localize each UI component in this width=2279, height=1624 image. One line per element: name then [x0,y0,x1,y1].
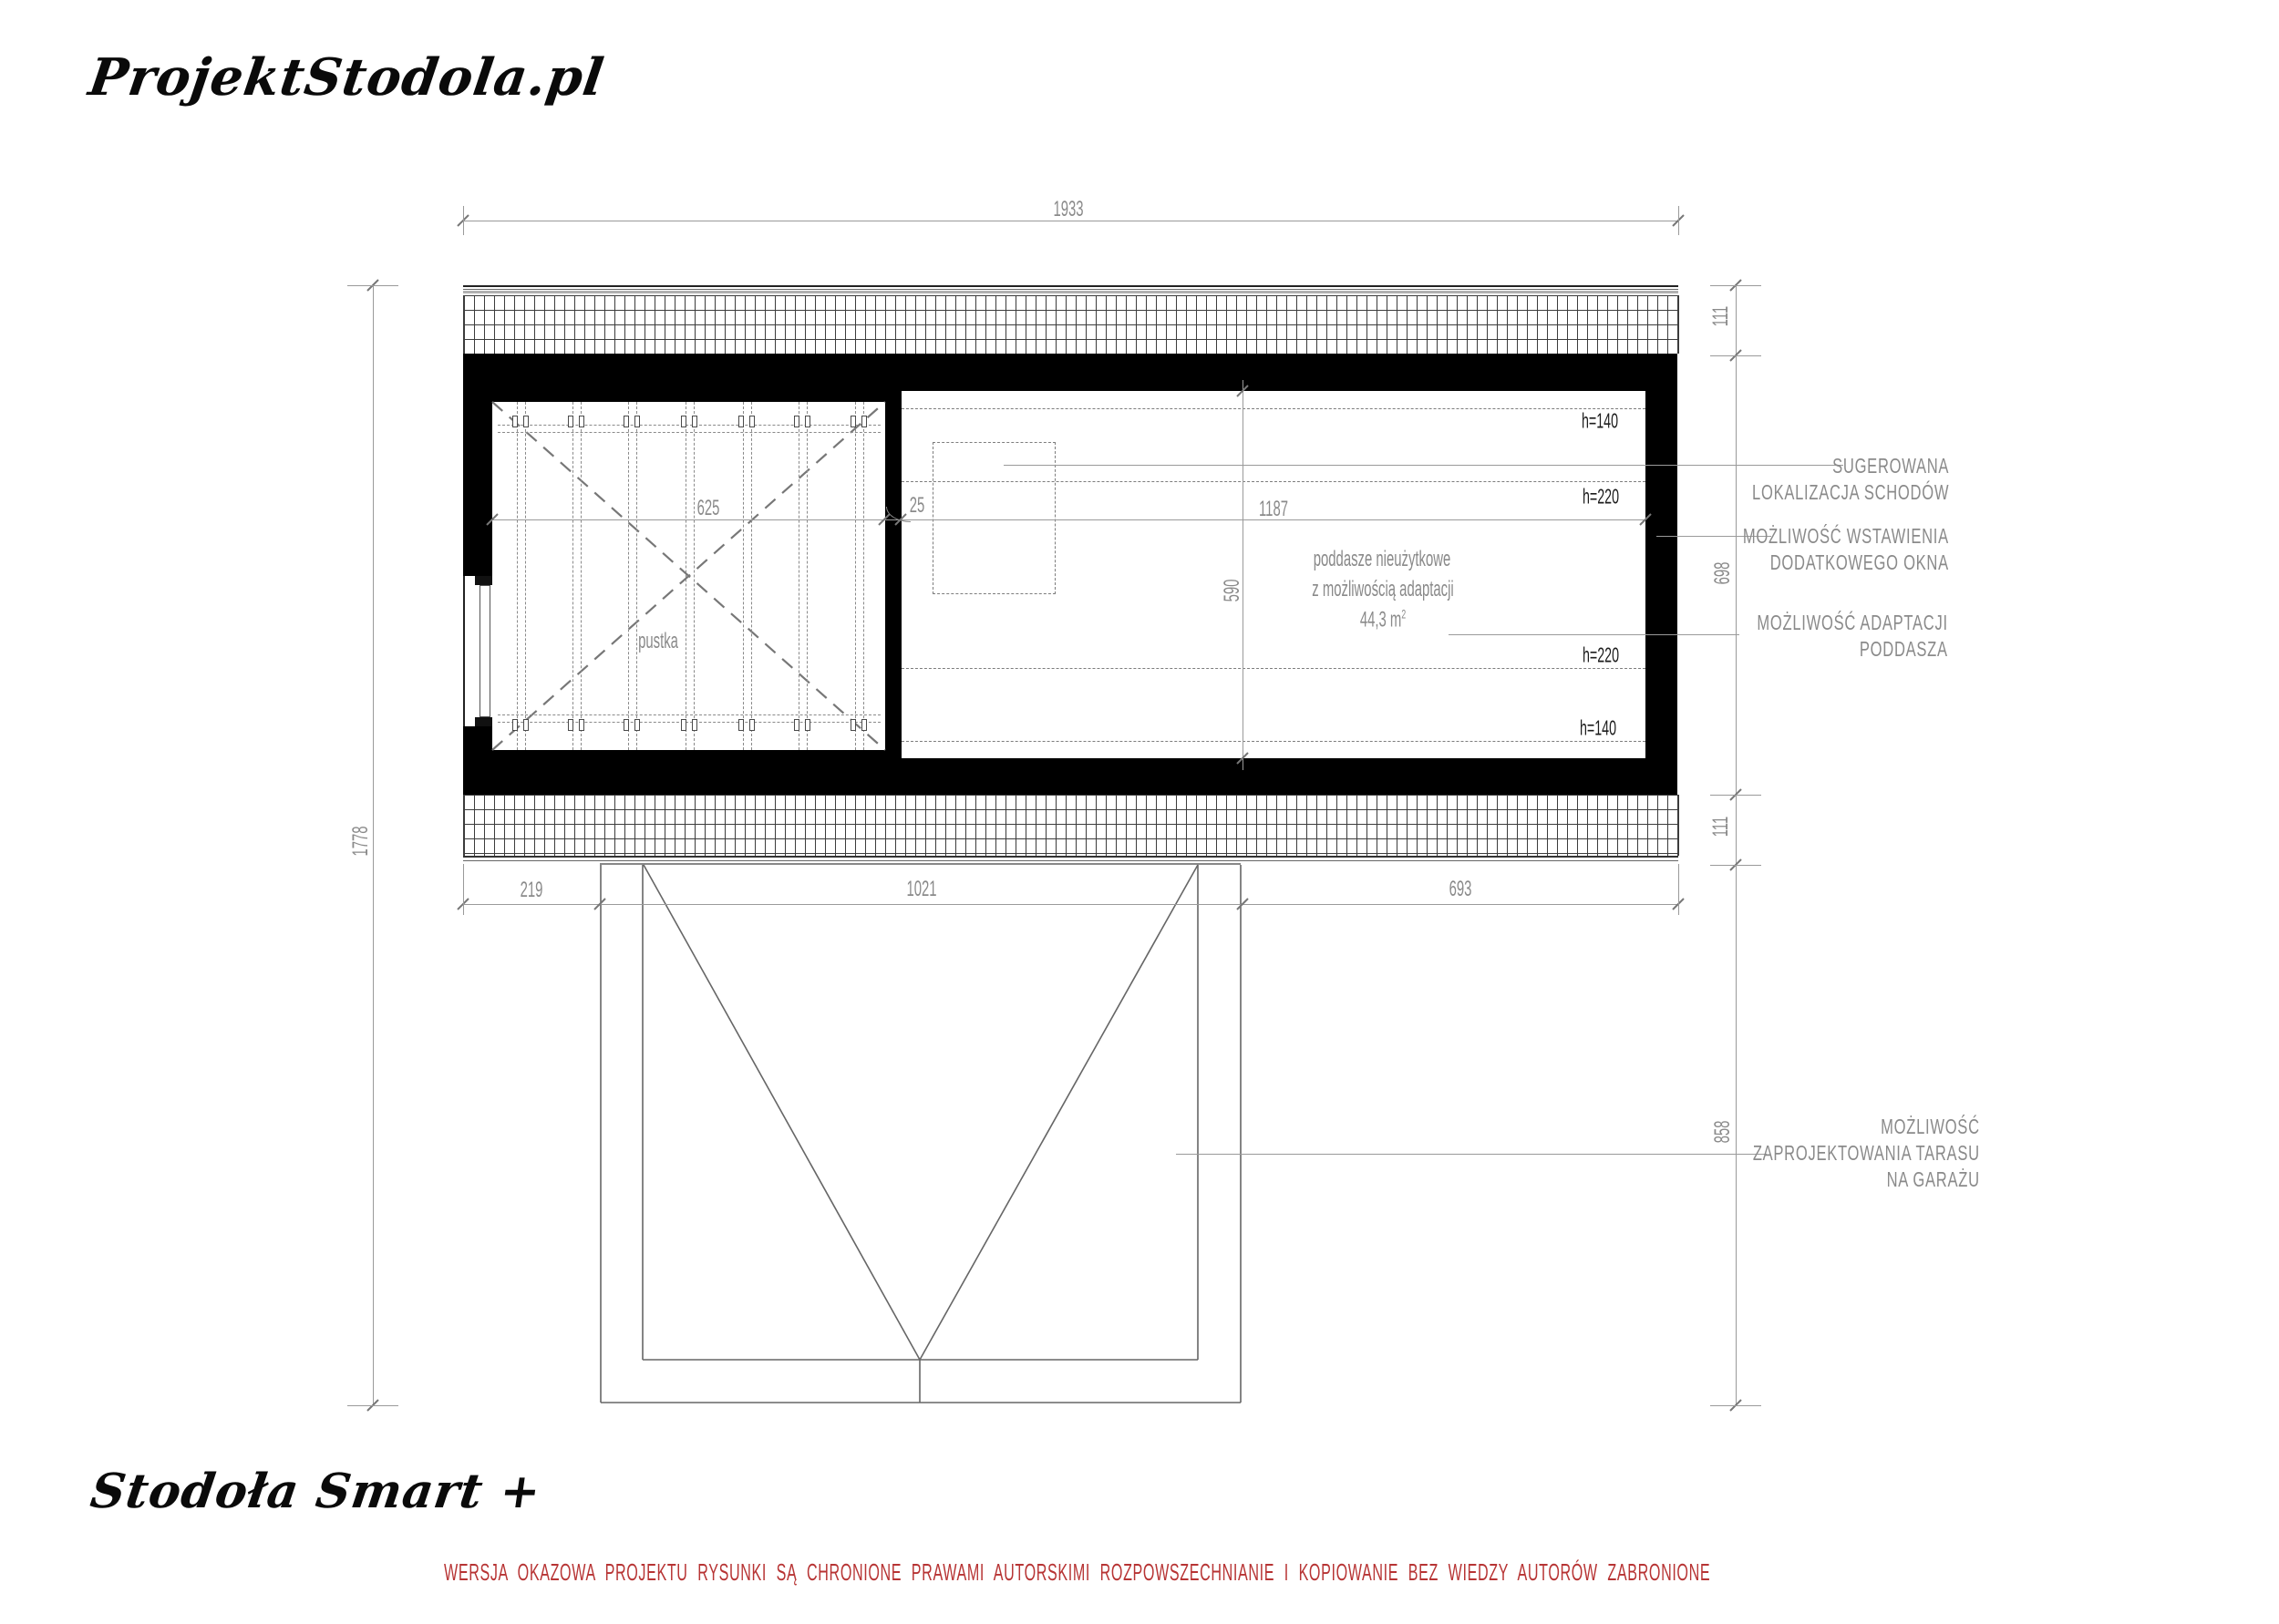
h220-line-bottom [902,668,1645,669]
dim-bottom-right: 693 [1449,877,1472,902]
joist-hanger [861,416,867,427]
joist-pair [855,402,864,750]
dim-attic-depth: 590 [1220,580,1245,602]
dim-extension-line [463,864,464,915]
annotation-adaptation: MOŻLIWOŚĆ ADAPTACJI PODDASZA [1758,610,1948,663]
leader-terrace [1176,1154,1767,1155]
dim-extension-line [1710,865,1761,866]
dim-overall-width: 1933 [1053,197,1083,222]
dim-line-bottom-chain [463,904,1678,905]
h220-label-top: h=220 [1583,485,1619,509]
joist-hanger [624,416,629,427]
roof-hatch-bottom [463,795,1679,856]
joist-hanger [851,719,856,731]
joist-hanger [738,719,744,731]
window-jamb-top [475,576,492,585]
joist-hanger [624,719,629,731]
h220-label-bottom: h=220 [1583,643,1619,668]
joist-hanger [749,719,755,731]
dim-bottom-garage: 1021 [906,877,936,902]
joist-hanger [568,719,573,731]
roof-top-fascia [463,291,1678,293]
dim-pustka-width: 625 [697,496,720,521]
attic-room-label-line1: poddasze nieużytkowe [1314,547,1451,572]
dim-extension-line [1710,795,1761,796]
dim-extension-line [1710,355,1761,356]
joist-hanger [794,416,799,427]
joist-hanger [861,719,867,731]
joist-hanger [805,416,810,427]
joist-pair [628,402,637,750]
dim-extension-line [1678,864,1679,915]
joist-hanger [749,416,755,427]
dim-extension-line [1678,206,1679,235]
joist-hanger [634,719,640,731]
brand-logo-top: ProjektStodola.pl [85,47,607,108]
attic-room-label-line2: z możliwością adaptacji [1312,577,1453,602]
dim-overall-height: 1778 [348,826,374,856]
joist-hanger [738,416,744,427]
joist-hanger [681,416,686,427]
joist-pair [799,402,808,750]
annotation-terrace-line3: NA GARAŻU [1753,1167,1980,1193]
dim-extension-line [1710,1405,1761,1406]
roof-top-edge-line [463,285,1678,287]
dim-line-attic-depth [1243,380,1243,770]
joist-hanger [805,719,810,731]
window-frame [480,585,490,717]
h140-line-top [902,408,1645,409]
joist-hanger [523,416,529,427]
annotation-stairs-line2: LOKALIZACJA SCHODÓW [1752,479,1949,506]
dim-right-garage: 858 [1710,1121,1736,1144]
leader-adaptation [1449,634,1739,635]
joist-pair [572,402,582,750]
joist-hanger [692,719,697,731]
joist-hanger [692,416,697,427]
joist-pair [517,402,526,750]
joist-hanger [568,416,573,427]
joist-pair [743,402,752,750]
annotation-window: MOŻLIWOŚĆ WSTAWIENIA DODATKOWEGO OKNA [1743,523,1949,576]
window-jamb-bottom [475,717,492,726]
leader-stairs [1004,465,1843,466]
pustka-room-label: pustka [638,629,678,654]
dim-right-roof-bottom: 111 [1708,817,1734,838]
annotation-window-line2: DODATKOWEGO OKNA [1743,550,1949,576]
project-name-logo: Stodoła Smart + [88,1464,545,1519]
annotation-stairs: SUGEROWANA LOKALIZACJA SCHODÓW [1752,453,1949,506]
joist-hanger [681,719,686,731]
window-exterior-face-line [463,576,465,726]
roof-top-edge-line2 [463,289,1678,290]
joist-hanger [794,719,799,731]
joist-hanger [523,719,529,731]
roof-hatch-top [463,295,1679,354]
annotation-adaptation-line1: MOŻLIWOŚĆ ADAPTACJI [1758,610,1948,636]
garage-roof-outline [593,857,1249,1413]
joist-hanger [579,416,584,427]
joist-hanger [512,719,518,731]
annotation-adaptation-line2: PODDASZA [1758,636,1948,663]
annotation-terrace: MOŻLIWOŚĆ ZAPROJEKTOWANIA TARASU NA GARA… [1753,1114,1980,1193]
dim-right-roof-top: 111 [1708,306,1734,327]
dim-bottom-left: 219 [521,878,543,903]
copyright-warning: WERSJA OKAZOWA PROJEKTU RYSUNKI SĄ CHRON… [444,1558,1710,1587]
joist-pair [686,402,695,750]
dim-line-right-chain [1736,285,1737,1405]
dim-interior-wall: 25 [910,493,925,519]
dim-line-interior-widths [492,519,1645,520]
h140-line-bottom [902,741,1645,742]
dim-right-wall-span: 698 [1710,562,1736,585]
annotation-window-line1: MOŻLIWOŚĆ WSTAWIENIA [1743,523,1949,550]
dim-attic-width: 1187 [1259,497,1288,522]
joist-hanger [634,416,640,427]
attic-room-area: 44,3 m2 [1360,607,1406,633]
floor-plan-sheet: ProjektStodola.pl Stodoła Smart + pustka… [0,0,2279,1624]
annotation-stairs-line1: SUGEROWANA [1752,453,1949,479]
dim-extension-line [347,285,398,286]
dim-extension-line [1710,285,1761,286]
joist-hanger [512,416,518,427]
annotation-terrace-line2: ZAPROJEKTOWANIA TARASU [1753,1140,1980,1167]
dim-extension-line [463,206,464,235]
joist-hanger [851,416,856,427]
h140-label-top: h=140 [1582,409,1618,434]
annotation-terrace-line1: MOŻLIWOŚĆ [1753,1114,1980,1140]
dim-extension-line [347,1405,398,1406]
h140-label-bottom: h=140 [1580,716,1616,741]
joist-hanger [579,719,584,731]
